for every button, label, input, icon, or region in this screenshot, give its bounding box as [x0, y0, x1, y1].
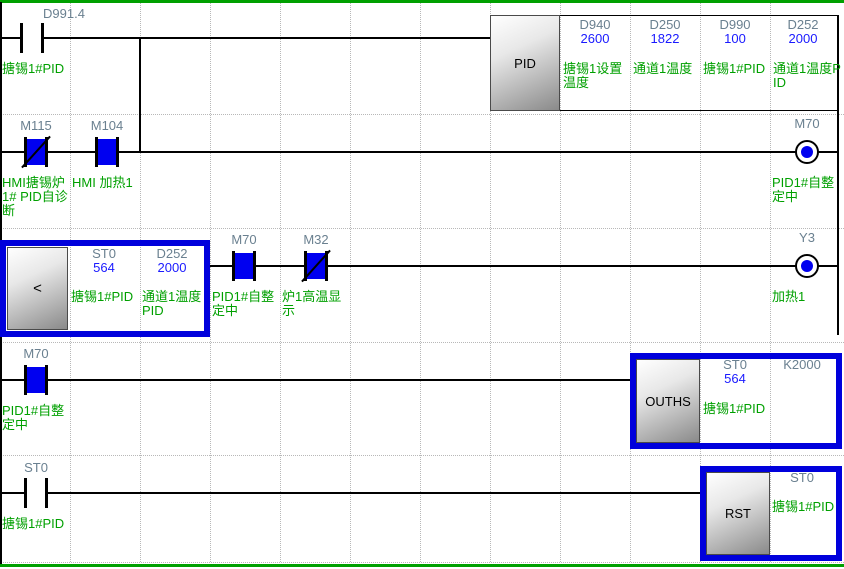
device-comment: 通道1温度PID: [142, 290, 204, 318]
nc-contact-m115[interactable]: [24, 137, 48, 167]
pid-instruction-box[interactable]: PID: [490, 15, 560, 111]
coil-energized-core: [801, 260, 813, 272]
contact-bar: [253, 251, 256, 281]
monitor-value: 564: [69, 260, 139, 275]
grid-line: [210, 2, 211, 562]
device-comment: 搪锡1#PID: [2, 517, 70, 531]
output-coil-y3[interactable]: [795, 254, 819, 278]
ouths-instruction-label: OUTHS: [645, 394, 691, 409]
contact-state-fill: [98, 139, 116, 165]
nc-contact-m32[interactable]: [304, 251, 328, 281]
contact-bar: [45, 365, 48, 395]
device-comment: PID1#自整定中: [772, 176, 840, 204]
pid-instruction-label: PID: [514, 56, 536, 71]
device-comment: 加热1: [772, 290, 840, 304]
monitor-value: 564: [700, 371, 770, 386]
grid-line: [420, 2, 421, 562]
no-contact-m70[interactable]: [232, 251, 256, 281]
grid-line: [0, 342, 844, 343]
rst-instruction-box[interactable]: RST: [706, 472, 770, 555]
device-comment: PID1#自整定中: [2, 404, 70, 432]
grid-line: [0, 114, 844, 115]
contact-state-fill: [27, 367, 45, 393]
program-separator-bottom: [0, 564, 844, 567]
device-label: K2000: [768, 357, 836, 372]
coil-energized-core: [801, 146, 813, 158]
device-comment: 搪锡1#PID: [703, 62, 771, 76]
monitor-value: 2000: [137, 260, 207, 275]
device-label: M104: [72, 118, 142, 133]
device-label: ST0: [69, 246, 139, 261]
device-label: ST0: [768, 470, 836, 485]
device-label: D990: [700, 17, 770, 32]
device-label: M115: [1, 118, 71, 133]
device-label: D252: [769, 17, 837, 32]
device-comment: 炉1高温显示: [282, 290, 350, 318]
contact-state-fill: [23, 25, 41, 51]
wire-rung3: [206, 265, 838, 267]
wire-rung5: [0, 492, 700, 494]
wire-rung4: [0, 379, 630, 381]
device-comment: HMI 加热1: [72, 176, 140, 190]
device-comment: 通道1温度: [633, 62, 701, 76]
contact-bar: [41, 23, 44, 53]
contact-bar: [45, 478, 48, 508]
device-comment: 搪锡1#PID: [703, 402, 771, 416]
grid-line: [0, 562, 844, 563]
no-contact-m70[interactable]: [24, 365, 48, 395]
contact-state-fill: [235, 253, 253, 279]
wire-rung2: [0, 151, 838, 153]
device-comment: PID1#自整定中: [212, 290, 280, 318]
monitor-value: 2000: [769, 31, 837, 46]
wire-branch-junction: [139, 37, 141, 153]
device-label: Y3: [772, 230, 842, 245]
device-comment: 搪锡1#PID: [2, 62, 70, 76]
rst-instruction-label: RST: [725, 506, 751, 521]
program-separator-top: [0, 0, 844, 3]
device-label: D252: [137, 246, 207, 261]
contact-state-fill: [27, 480, 45, 506]
monitor-value: 2600: [560, 31, 630, 46]
device-label: ST0: [1, 460, 71, 475]
wire-rung1: [0, 37, 490, 39]
device-label: D991.4: [29, 6, 99, 21]
device-label: M70: [772, 116, 842, 131]
compare-instruction-label: <: [33, 280, 42, 297]
no-contact-d991-4[interactable]: [20, 23, 44, 53]
output-coil-m70[interactable]: [795, 140, 819, 164]
device-comment: 搪锡1设置温度: [563, 62, 631, 90]
grid-line: [350, 2, 351, 562]
monitor-value: 100: [700, 31, 770, 46]
device-label: M70: [1, 346, 71, 361]
grid-line: [0, 228, 844, 229]
ouths-instruction-box[interactable]: OUTHS: [636, 359, 700, 443]
compare-instruction-box[interactable]: <: [7, 247, 68, 330]
device-comment: 搪锡1#PID: [772, 500, 840, 514]
monitor-value: 1822: [630, 31, 700, 46]
device-comment: HMI搪锡炉1# PID自诊断: [2, 176, 70, 218]
contact-bar: [116, 137, 119, 167]
device-label: ST0: [700, 357, 770, 372]
device-label: M32: [281, 232, 351, 247]
device-label: M70: [209, 232, 279, 247]
device-comment: 通道1温度PID: [773, 62, 841, 90]
grid-line: [0, 455, 844, 456]
device-label: D940: [560, 17, 630, 32]
device-comment: 搪锡1#PID: [71, 290, 139, 304]
ladder-editor-canvas: D991.4 搪锡1#PID PID D940 2600 搪锡1设置温度 D25…: [0, 0, 844, 569]
no-contact-st0[interactable]: [24, 478, 48, 508]
no-contact-m104[interactable]: [95, 137, 119, 167]
device-label: D250: [630, 17, 700, 32]
grid-line: [280, 2, 281, 562]
